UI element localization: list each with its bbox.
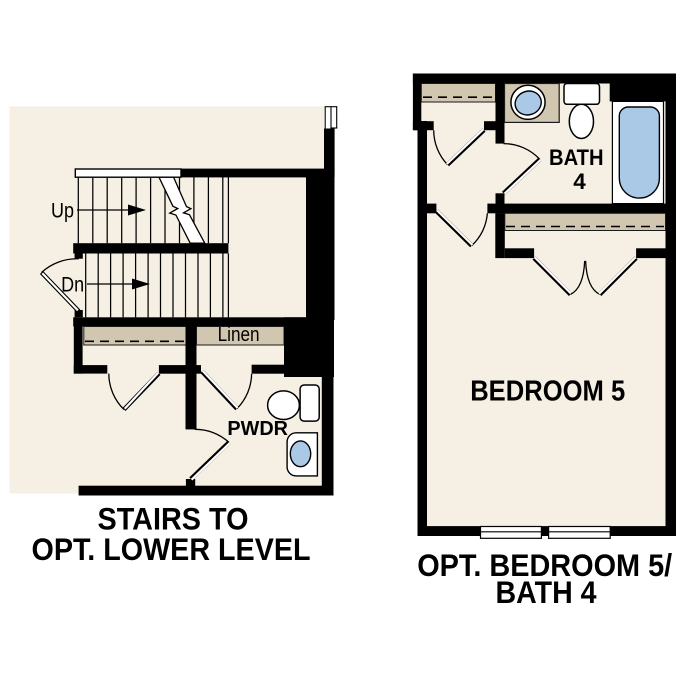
svg-text:BATH 4: BATH 4 [496, 574, 597, 610]
svg-text:PWDR: PWDR [227, 418, 288, 440]
svg-text:BEDROOM 5: BEDROOM 5 [470, 376, 625, 408]
svg-text:4: 4 [573, 169, 586, 194]
svg-text:OPT. LOWER LEVEL: OPT. LOWER LEVEL [32, 531, 311, 567]
svg-text:Linen: Linen [218, 324, 260, 346]
svg-text:BATH: BATH [549, 145, 604, 170]
svg-text:Dn: Dn [61, 274, 84, 297]
svg-text:Up: Up [51, 200, 74, 223]
